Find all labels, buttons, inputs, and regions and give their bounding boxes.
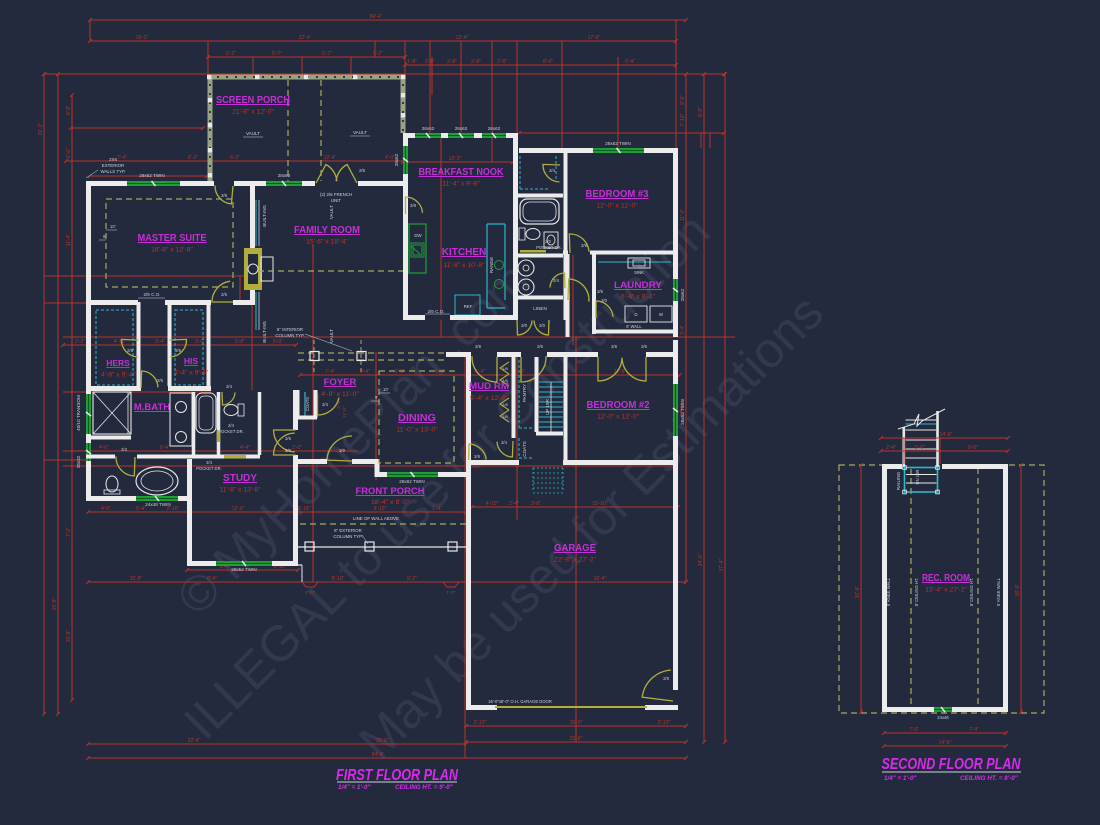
svg-text:BUILT-INS: BUILT-INS (262, 205, 267, 227)
svg-text:2'-10": 2'-10" (474, 720, 487, 726)
svg-text:2/4: 2/4 (501, 440, 507, 445)
svg-text:10': 10' (110, 224, 116, 229)
svg-text:2/4: 2/4 (322, 402, 328, 407)
svg-text:3'-6": 3'-6" (195, 339, 205, 345)
svg-text:2/8: 2/8 (475, 344, 481, 349)
svg-text:6" INTERIOR: 6" INTERIOR (277, 327, 303, 332)
svg-text:FAMILY ROOM: FAMILY ROOM (294, 225, 360, 236)
svg-text:14'-6": 14'-6" (939, 740, 952, 746)
svg-text:5' KNEE WALL: 5' KNEE WALL (886, 577, 891, 606)
svg-text:HERS: HERS (106, 358, 130, 368)
svg-text:21'-8" x 12'-0": 21'-8" x 12'-0" (232, 109, 274, 116)
svg-text:2'-10": 2'-10" (658, 720, 671, 726)
svg-text:28x62 TWIN: 28x62 TWIN (399, 479, 424, 484)
svg-text:4'-6": 4'-6" (101, 506, 111, 512)
svg-text:FOYER: FOYER (324, 377, 357, 388)
svg-text:D: D (634, 312, 637, 317)
svg-text:2/6: 2/6 (537, 344, 543, 349)
svg-text:28x52 TWIN: 28x52 TWIN (605, 141, 630, 146)
svg-text:19'-2": 19'-2" (136, 35, 149, 41)
svg-text:28x62: 28x62 (488, 126, 501, 131)
svg-text:8" EXTERIOR: 8" EXTERIOR (334, 528, 362, 533)
svg-text:16'-0"x8'-0" O.H. GARAGE DOOR: 16'-0"x8'-0" O.H. GARAGE DOOR (488, 699, 552, 704)
svg-text:13'-4" x 27'-2": 13'-4" x 27'-2" (925, 587, 967, 594)
svg-text:2'-4": 2'-4" (886, 445, 896, 451)
svg-text:GARAGE: GARAGE (554, 543, 596, 554)
svg-text:1'-0": 1'-0" (305, 590, 315, 595)
svg-text:2/8: 2/8 (663, 676, 669, 681)
svg-text:5' KNEE WALL: 5' KNEE WALL (996, 577, 1001, 606)
svg-text:16'-8" x 12'-8": 16'-8" x 12'-8" (151, 247, 193, 254)
svg-text:12'-4": 12'-4" (324, 155, 337, 161)
svg-text:8'-8": 8'-8" (698, 107, 704, 117)
svg-text:2/4: 2/4 (553, 278, 559, 283)
svg-text:5'-8": 5'-8" (235, 339, 245, 345)
svg-text:BREAKFAST NOOK: BREAKFAST NOOK (419, 167, 505, 178)
svg-text:2/8: 2/8 (474, 454, 480, 459)
svg-text:2/0: 2/0 (521, 323, 527, 328)
svg-text:5'-0": 5'-0" (273, 339, 283, 345)
svg-text:1/4" = 1'-0": 1/4" = 1'-0" (884, 775, 918, 782)
svg-text:7'-4": 7'-4" (117, 155, 127, 161)
svg-text:6'-4": 6'-4" (625, 59, 635, 65)
svg-text:11'-0": 11'-0" (342, 406, 347, 418)
svg-text:8'-10": 8'-10" (332, 576, 345, 582)
svg-text:MUD RM: MUD RM (469, 381, 509, 392)
svg-text:2/6: 2/6 (175, 348, 181, 353)
svg-text:2'-8": 2'-8" (497, 59, 507, 65)
svg-text:16'-8": 16'-8" (66, 629, 72, 642)
svg-text:3'-0": 3'-0" (515, 369, 525, 375)
svg-text:VAULT: VAULT (246, 131, 260, 136)
svg-text:28x52 TWIN: 28x52 TWIN (139, 173, 164, 178)
svg-text:15'-8": 15'-8" (130, 576, 143, 582)
svg-text:7'-0": 7'-0" (909, 727, 919, 733)
svg-text:6'-4": 6'-4" (160, 445, 170, 451)
svg-text:1'-8": 1'-8" (407, 59, 417, 65)
svg-text:36'-8": 36'-8" (855, 585, 861, 598)
svg-text:18'-4": 18'-4" (376, 738, 389, 744)
svg-text:4'-4" x 9'-4": 4'-4" x 9'-4" (174, 370, 209, 377)
svg-text:40/10 TRANSOM: 40/10 TRANSOM (76, 395, 81, 431)
svg-text:34'-0": 34'-0" (698, 553, 704, 566)
svg-text:SCREEN PORCH: SCREEN PORCH (216, 95, 290, 106)
svg-text:12'-3": 12'-3" (449, 156, 462, 162)
svg-text:7'-2": 7'-2" (66, 527, 72, 537)
svg-text:PANTRY: PANTRY (522, 384, 527, 402)
svg-text:28x62: 28x62 (422, 126, 435, 131)
svg-text:12'-0" x 12'-0": 12'-0" x 12'-0" (597, 414, 639, 421)
svg-text:UNIT: UNIT (331, 198, 342, 203)
svg-text:4'-0": 4'-0" (99, 445, 109, 451)
svg-text:11'-0": 11'-0" (680, 209, 686, 222)
svg-text:2/6: 2/6 (359, 168, 366, 173)
svg-text:2/0: 2/0 (539, 323, 545, 328)
svg-text:28x52 TWIN: 28x52 TWIN (680, 399, 685, 424)
svg-text:1'-0": 1'-0" (292, 445, 302, 451)
svg-text:7'-4": 7'-4" (325, 369, 335, 375)
svg-text:BEDROOM #3: BEDROOM #3 (586, 189, 649, 200)
svg-text:6'-2": 6'-2" (188, 155, 198, 161)
svg-text:SINK: SINK (634, 270, 644, 275)
svg-text:2/6 C.O.: 2/6 C.O. (427, 309, 444, 314)
svg-text:VAULT: VAULT (329, 329, 334, 343)
svg-text:POCKET DR.: POCKET DR. (196, 466, 222, 471)
svg-text:17'-8": 17'-8" (588, 35, 601, 41)
svg-text:84'-4": 84'-4" (372, 752, 385, 758)
svg-text:2/8: 2/8 (221, 193, 227, 198)
svg-text:5'-7": 5'-7" (272, 51, 282, 57)
svg-text:28x52 TWIN: 28x52 TWIN (231, 567, 256, 572)
svg-text:4'-8" x 11'-0": 4'-8" x 11'-0" (321, 391, 359, 398)
svg-text:4'-10": 4'-10" (486, 501, 499, 507)
svg-text:2'-10": 2'-10" (298, 506, 311, 512)
svg-text:2'-2": 2'-2" (75, 339, 85, 345)
svg-text:84'-4": 84'-4" (370, 14, 383, 20)
svg-text:10': 10' (383, 387, 389, 392)
svg-text:BEDROOM #2: BEDROOM #2 (587, 400, 650, 411)
svg-text:KITCHEN: KITCHEN (442, 247, 486, 258)
svg-text:9'-8": 9'-8" (680, 95, 686, 105)
svg-text:BUILT-INS: BUILT-INS (262, 321, 267, 343)
svg-text:18'-4" x 8'-0": 18'-4" x 8'-0" (371, 499, 410, 506)
svg-text:22'-4": 22'-4" (299, 35, 312, 41)
svg-text:8'-4": 8'-4" (543, 59, 553, 65)
svg-text:3/0: 3/0 (339, 448, 345, 453)
svg-text:UP 18R: UP 18R (545, 398, 550, 415)
svg-text:6'-2": 6'-2" (230, 155, 240, 161)
svg-text:7'-4": 7'-4" (969, 727, 979, 733)
svg-text:2/6: 2/6 (221, 292, 227, 297)
svg-text:1/4" = 1'-0": 1/4" = 1'-0" (338, 784, 372, 791)
svg-text:FRONT PORCH: FRONT PORCH (356, 486, 425, 497)
svg-text:3'-8": 3'-8" (531, 501, 541, 507)
svg-text:2/0: 2/0 (545, 239, 551, 244)
svg-text:SECOND FLOOR PLAN: SECOND FLOOR PLAN (882, 756, 1022, 773)
svg-text:28x62: 28x62 (680, 288, 685, 301)
svg-text:2/4: 2/4 (121, 447, 127, 452)
svg-text:2/0: 2/0 (601, 298, 607, 303)
svg-text:COATS: COATS (305, 397, 310, 411)
svg-text:2/6: 2/6 (641, 344, 647, 349)
svg-text:VAULT: VAULT (329, 205, 334, 219)
svg-text:28x62: 28x62 (278, 173, 291, 178)
svg-text:RAILING: RAILING (896, 471, 901, 490)
svg-text:31'-2": 31'-2" (38, 122, 44, 135)
svg-text:9'-4": 9'-4" (360, 369, 370, 375)
svg-text:2/8: 2/8 (410, 203, 416, 208)
svg-text:DINING: DINING (398, 413, 436, 424)
svg-text:6' WALL: 6' WALL (626, 324, 642, 329)
svg-text:5'-0": 5'-0" (915, 445, 925, 451)
svg-text:1/8: 1/8 (502, 366, 508, 371)
svg-text:15'-10": 15'-10" (592, 501, 608, 507)
svg-text:FIRST FLOOR PLAN: FIRST FLOOR PLAN (336, 767, 459, 784)
svg-text:22'-8" x 27'-2": 22'-8" x 27'-2" (554, 557, 596, 564)
svg-text:2'-8": 2'-8" (447, 59, 457, 65)
svg-text:6'-4" x 8'-4": 6'-4" x 8'-4" (621, 294, 656, 301)
svg-text:11'-4" x 9'-6": 11'-4" x 9'-6" (442, 181, 480, 188)
svg-text:11'-4": 11'-4" (66, 234, 72, 247)
svg-text:1'-0": 1'-0" (446, 590, 456, 595)
svg-text:2/6: 2/6 (285, 436, 291, 441)
svg-text:9'-6": 9'-6" (968, 445, 978, 451)
svg-text:35'-8": 35'-8" (52, 597, 58, 610)
svg-text:5'-2": 5'-2" (226, 51, 236, 57)
svg-text:RANGE: RANGE (489, 257, 494, 273)
svg-text:LINE OF WALL ABOVE: LINE OF WALL ABOVE (353, 516, 399, 521)
svg-text:2'-4": 2'-4" (509, 501, 519, 507)
svg-text:REC. ROOM: REC. ROOM (922, 573, 970, 584)
svg-text:5'-7": 5'-7" (322, 51, 332, 57)
svg-text:2X6: 2X6 (109, 157, 117, 162)
svg-text:9'-10": 9'-10" (374, 506, 387, 512)
svg-text:7'-10": 7'-10" (680, 113, 686, 126)
svg-text:8'-8": 8'-8" (66, 105, 72, 115)
svg-text:2/4: 2/4 (226, 384, 232, 389)
svg-text:2/6: 2/6 (597, 289, 603, 294)
svg-text:2/6 C.O.: 2/6 C.O. (143, 292, 160, 297)
svg-text:12'-0" x 11'-0": 12'-0" x 11'-0" (596, 203, 638, 210)
svg-text:WALLS TYP.: WALLS TYP. (100, 169, 125, 174)
svg-text:8' CEILING HT.: 8' CEILING HT. (914, 578, 919, 607)
svg-text:2'-8": 2'-8" (471, 59, 481, 65)
svg-text:8' CEILING HT.: 8' CEILING HT. (969, 578, 974, 607)
svg-text:HIS: HIS (184, 356, 199, 366)
svg-text:22'-4": 22'-4" (188, 738, 201, 744)
svg-text:2/6: 2/6 (581, 243, 587, 248)
svg-text:3'-4": 3'-4" (680, 325, 686, 335)
svg-text:28x62: 28x62 (394, 153, 399, 166)
svg-text:POCKET DR.: POCKET DR. (536, 245, 562, 250)
svg-text:1/8: 1/8 (502, 402, 508, 407)
svg-text:9'-2": 9'-2" (407, 576, 417, 582)
svg-text:COATS: COATS (522, 441, 527, 456)
svg-text:11'-8" x 10'-8": 11'-8" x 10'-8" (443, 262, 485, 269)
svg-text:LAUNDRY: LAUNDRY (614, 280, 663, 291)
svg-text:11'-0" x 13'-0": 11'-0" x 13'-0" (396, 427, 438, 434)
svg-text:24x48 TWIN: 24x48 TWIN (145, 502, 170, 507)
svg-text:POCKET DR.: POCKET DR. (218, 429, 244, 434)
svg-text:2/6: 2/6 (157, 378, 163, 383)
svg-text:15'-6" x 18'-4": 15'-6" x 18'-4" (306, 239, 348, 246)
svg-text:M.BATH: M.BATH (134, 402, 170, 413)
svg-text:2/6: 2/6 (285, 448, 291, 453)
svg-text:14'-6": 14'-6" (940, 432, 953, 438)
svg-text:2/4: 2/4 (549, 168, 555, 173)
svg-text:16'-4": 16'-4" (594, 576, 607, 582)
svg-text:COLUMN TYP.: COLUMN TYP. (333, 534, 362, 539)
svg-text:3'-4": 3'-4" (155, 339, 165, 345)
svg-text:9': 9' (103, 234, 106, 239)
svg-text:4'-8" x 9'-4": 4'-8" x 9'-4" (101, 372, 136, 379)
svg-text:24x46: 24x46 (937, 715, 949, 720)
svg-text:VAULT: VAULT (353, 130, 367, 135)
svg-text:2/6: 2/6 (127, 348, 133, 353)
svg-text:2/6: 2/6 (611, 344, 617, 349)
svg-text:2'-2": 2'-2" (395, 369, 405, 375)
svg-text:1'-4": 1'-4" (432, 506, 442, 512)
svg-text:8'-4": 8'-4" (435, 369, 445, 375)
svg-text:12'-0": 12'-0" (232, 506, 245, 512)
svg-text:4'-4": 4'-4" (240, 445, 250, 451)
svg-text:36'-8": 36'-8" (1015, 583, 1021, 596)
svg-text:MASTER SUITE: MASTER SUITE (138, 233, 207, 244)
svg-text:REF: REF (464, 304, 473, 309)
svg-text:STUDY: STUDY (223, 473, 257, 484)
svg-text:28x62: 28x62 (455, 126, 468, 131)
svg-text:DW: DW (414, 233, 422, 238)
svg-text:CEILING HT. = 8'-0": CEILING HT. = 8'-0" (960, 775, 1019, 782)
svg-text:8'-4": 8'-4" (207, 576, 217, 582)
svg-text:6'-0": 6'-0" (66, 148, 72, 158)
svg-text:9': 9' (375, 395, 378, 400)
svg-text:DN 18R: DN 18R (915, 470, 920, 485)
svg-text:11'-8" x 13'-8": 11'-8" x 13'-8" (219, 487, 261, 494)
svg-text:LINEN: LINEN (533, 306, 547, 311)
svg-text:1/8: 1/8 (502, 414, 508, 419)
svg-text:(2) 2/6 FRENCH: (2) 2/6 FRENCH (320, 192, 352, 197)
svg-text:2/4: 2/4 (206, 460, 212, 465)
svg-text:EXTERIOR: EXTERIOR (102, 163, 124, 168)
svg-text:12'-4": 12'-4" (456, 35, 469, 41)
svg-text:CEILING HT. = 9'-0": CEILING HT. = 9'-0" (395, 784, 454, 791)
svg-text:28x32: 28x32 (76, 455, 81, 468)
svg-text:COLUMN TYP.: COLUMN TYP. (275, 333, 304, 338)
svg-text:37'-4": 37'-4" (719, 558, 725, 571)
svg-text:2/4: 2/4 (228, 423, 234, 428)
svg-text:5'-4" x 12'-0": 5'-4" x 12'-0" (470, 395, 509, 402)
